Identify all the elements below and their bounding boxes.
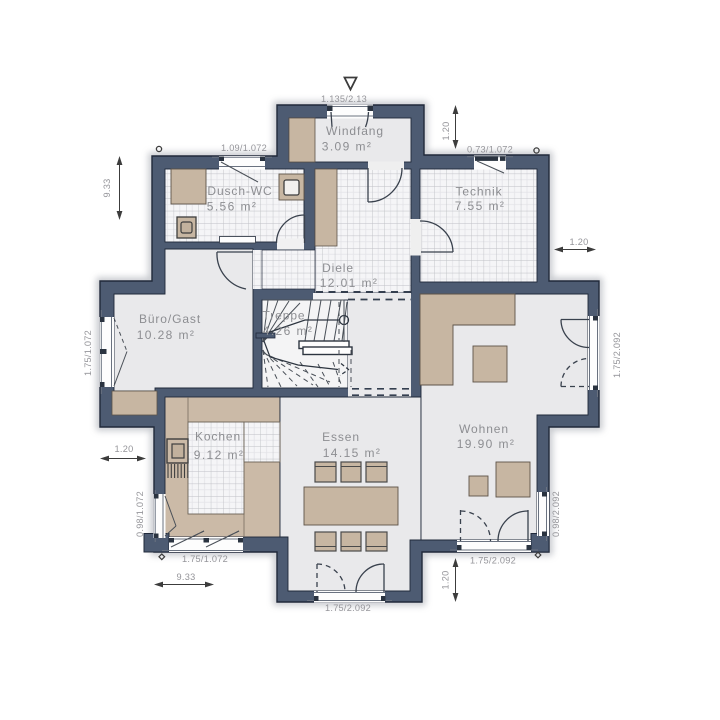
svg-text:1.09/1.072: 1.09/1.072: [221, 143, 267, 153]
svg-text:Dusch-WC: Dusch-WC: [207, 184, 272, 198]
svg-text:0.98/1.072: 0.98/1.072: [135, 491, 145, 537]
svg-text:Technik: Technik: [456, 185, 503, 199]
svg-text:9.33: 9.33: [102, 179, 112, 198]
svg-text:1.75/2.092: 1.75/2.092: [470, 556, 516, 566]
svg-text:10.28 m²: 10.28 m²: [137, 328, 196, 342]
svg-text:1.20: 1.20: [441, 122, 451, 141]
svg-text:1.75/1.072: 1.75/1.072: [83, 330, 93, 376]
svg-text:1.135/2.13: 1.135/2.13: [321, 94, 367, 104]
svg-text:19.90 m²: 19.90 m²: [457, 437, 516, 451]
svg-text:0.73/1.072: 0.73/1.072: [467, 145, 513, 155]
svg-text:14.15 m²: 14.15 m²: [323, 446, 382, 460]
svg-text:3.09 m²: 3.09 m²: [322, 140, 372, 154]
svg-text:1.75/1.072: 1.75/1.072: [182, 554, 228, 564]
svg-text:1.20: 1.20: [441, 571, 451, 590]
svg-text:9.12 m²: 9.12 m²: [194, 448, 244, 462]
svg-text:4.26 m²: 4.26 m²: [263, 324, 313, 338]
svg-text:Essen: Essen: [322, 430, 360, 444]
svg-text:Kochen: Kochen: [195, 430, 241, 444]
svg-text:7.55 m²: 7.55 m²: [455, 199, 505, 213]
svg-text:Büro/Gast: Büro/Gast: [139, 312, 201, 326]
svg-text:Windfang: Windfang: [326, 124, 384, 138]
svg-text:Diele: Diele: [322, 261, 354, 275]
svg-text:9.33: 9.33: [177, 572, 196, 582]
svg-text:12.01 m²: 12.01 m²: [320, 276, 379, 290]
svg-text:1.20: 1.20: [570, 237, 589, 247]
svg-text:1.75/2.092: 1.75/2.092: [325, 603, 371, 613]
svg-text:5.56 m²: 5.56 m²: [207, 200, 257, 214]
svg-text:Wohnen: Wohnen: [459, 422, 509, 436]
svg-text:Treppe: Treppe: [263, 309, 306, 323]
svg-text:1.75/2.092: 1.75/2.092: [612, 332, 622, 378]
svg-text:1.20: 1.20: [115, 444, 134, 454]
svg-text:0.98/2.092: 0.98/2.092: [551, 491, 561, 537]
